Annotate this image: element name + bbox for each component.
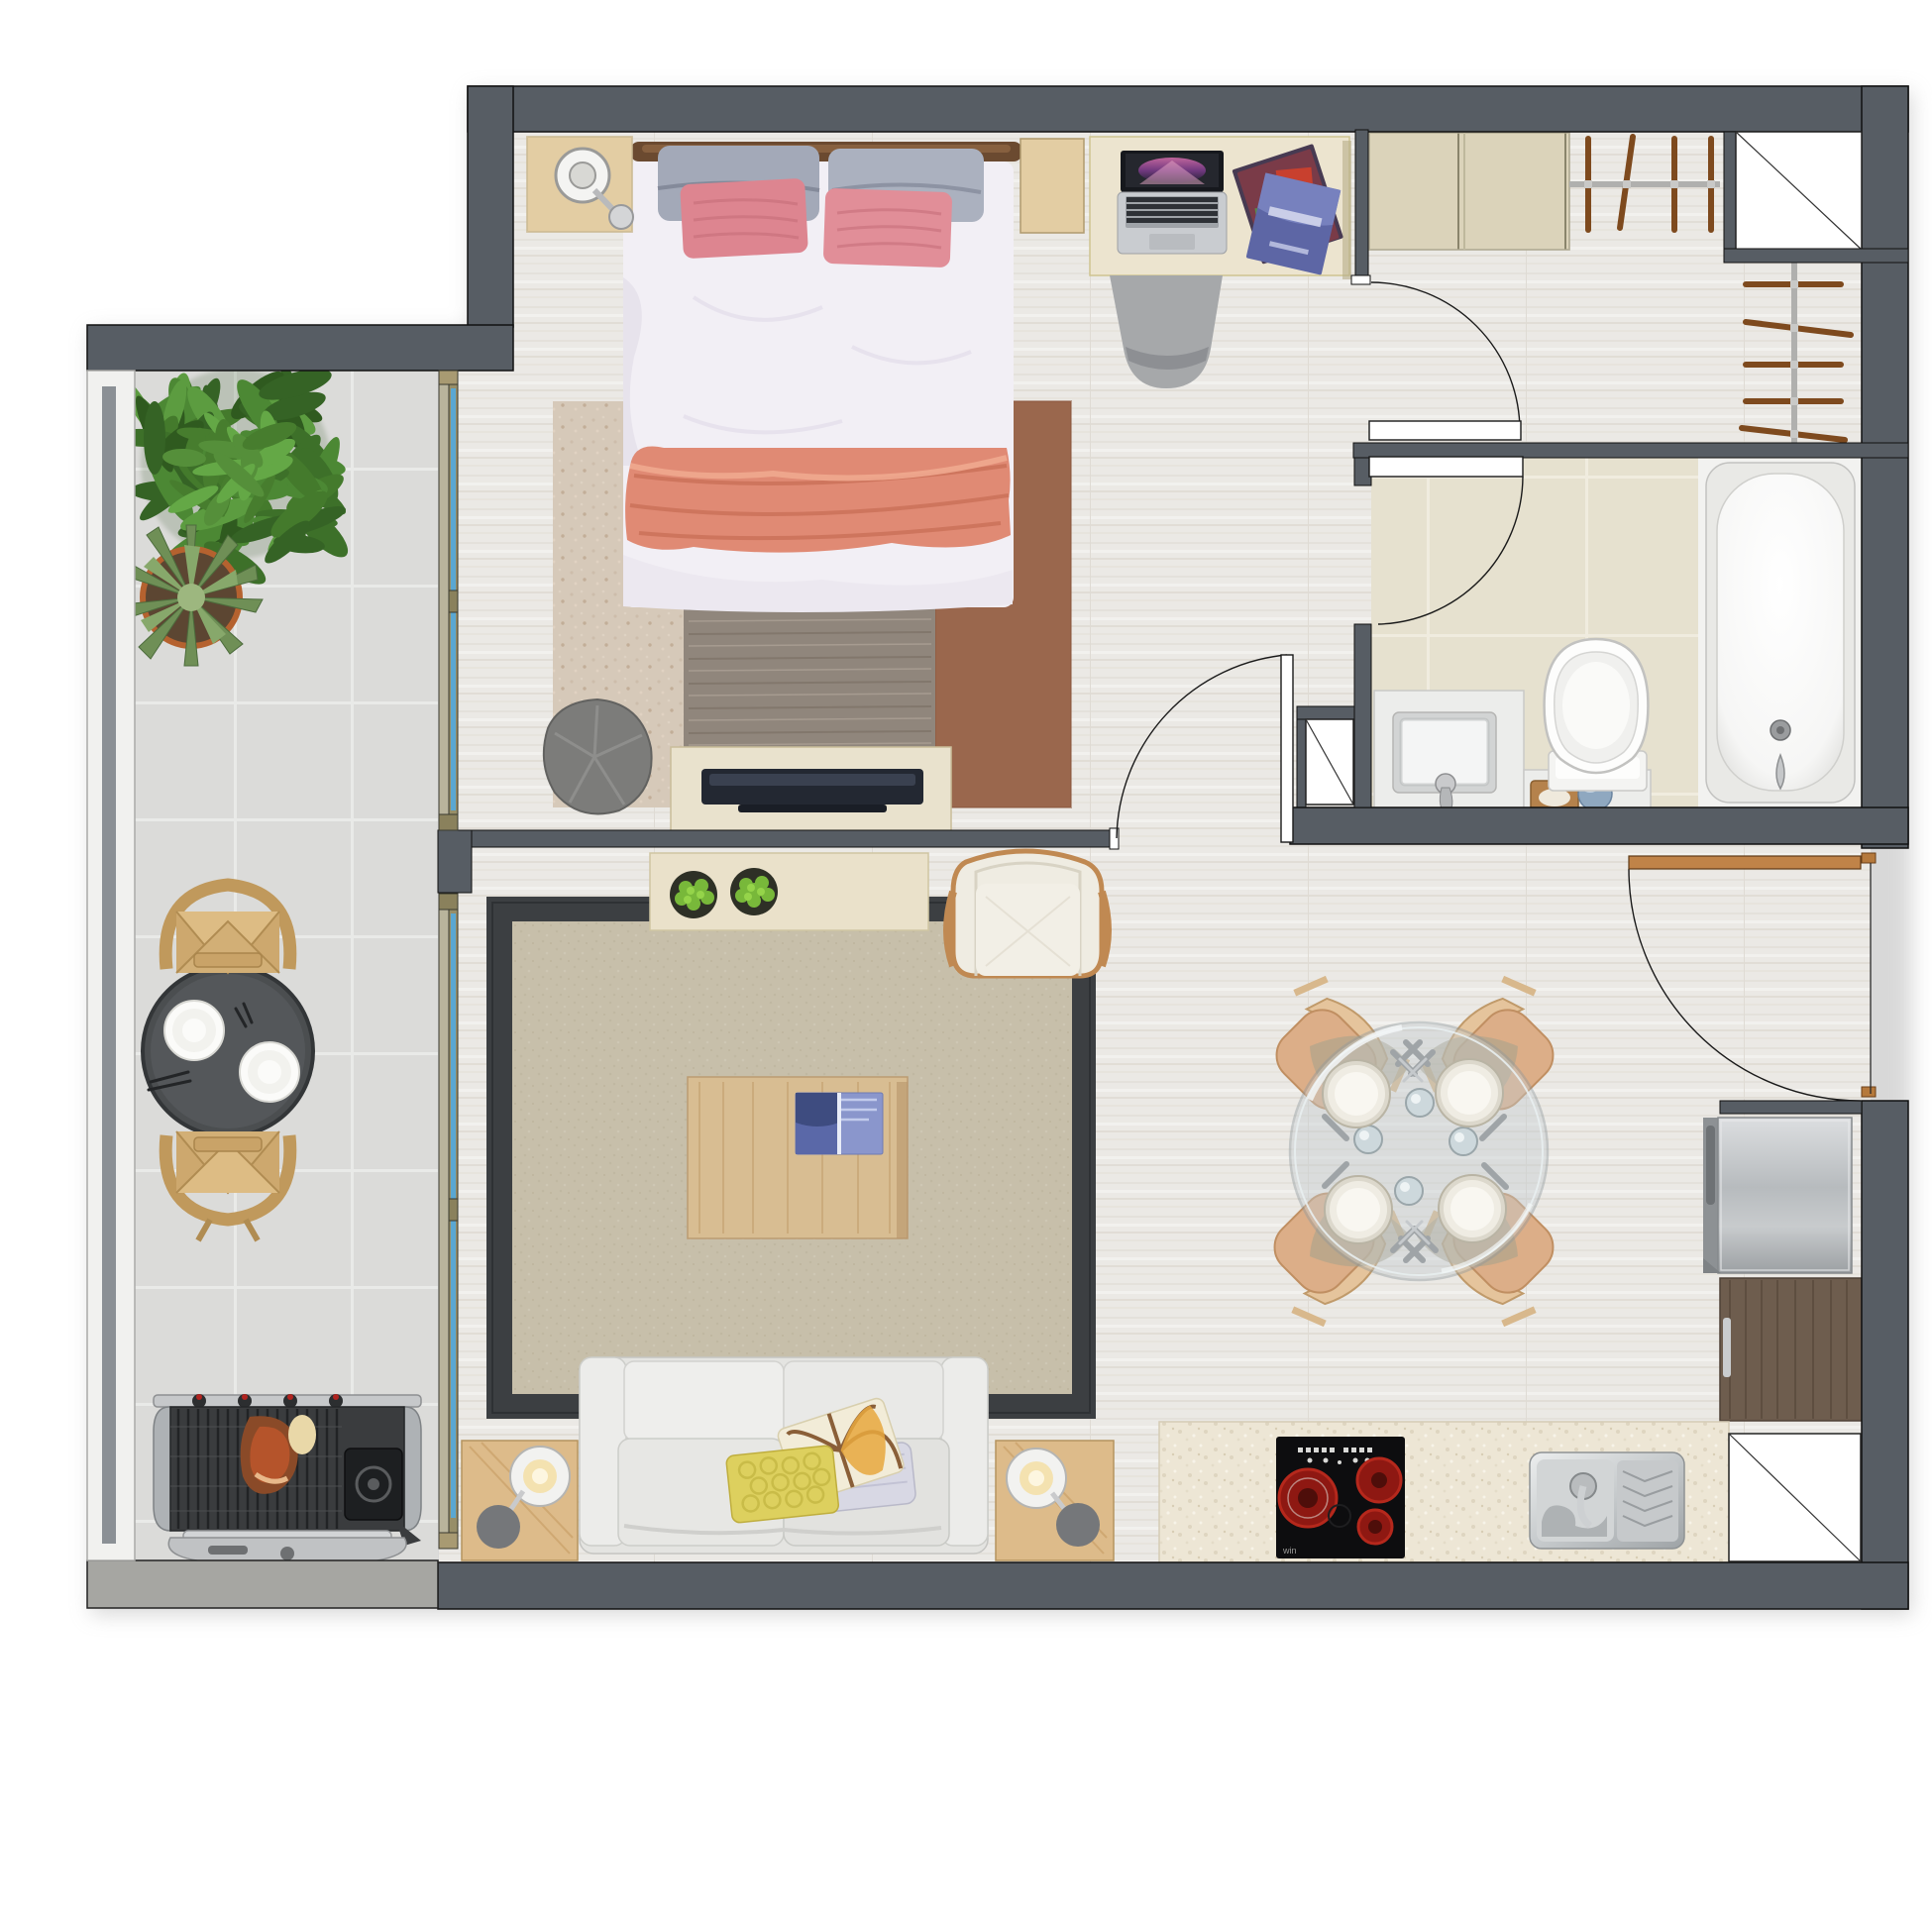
svg-text:win: win xyxy=(1282,1546,1297,1556)
